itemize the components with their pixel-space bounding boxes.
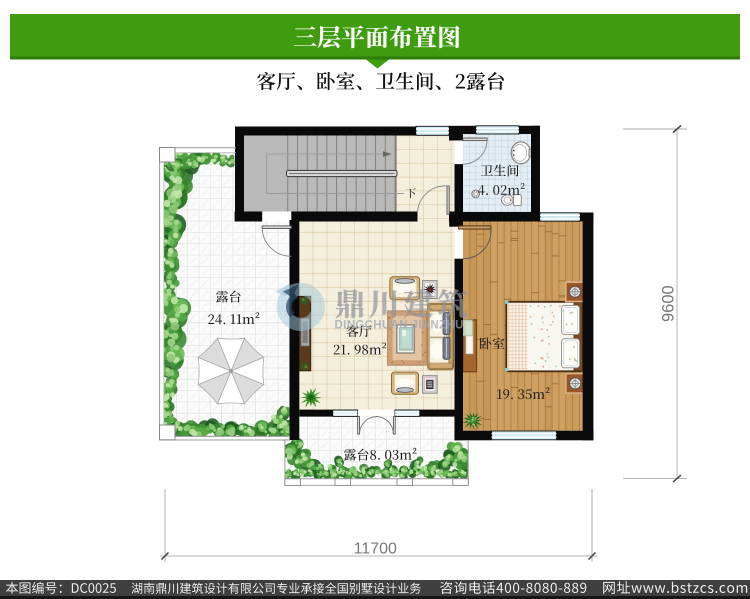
svg-text:DINGCHUAN JIANZHU: DINGCHUAN JIANZHU: [335, 319, 464, 331]
svg-text:9600: 9600: [659, 285, 677, 322]
svg-text:11700: 11700: [354, 541, 397, 558]
